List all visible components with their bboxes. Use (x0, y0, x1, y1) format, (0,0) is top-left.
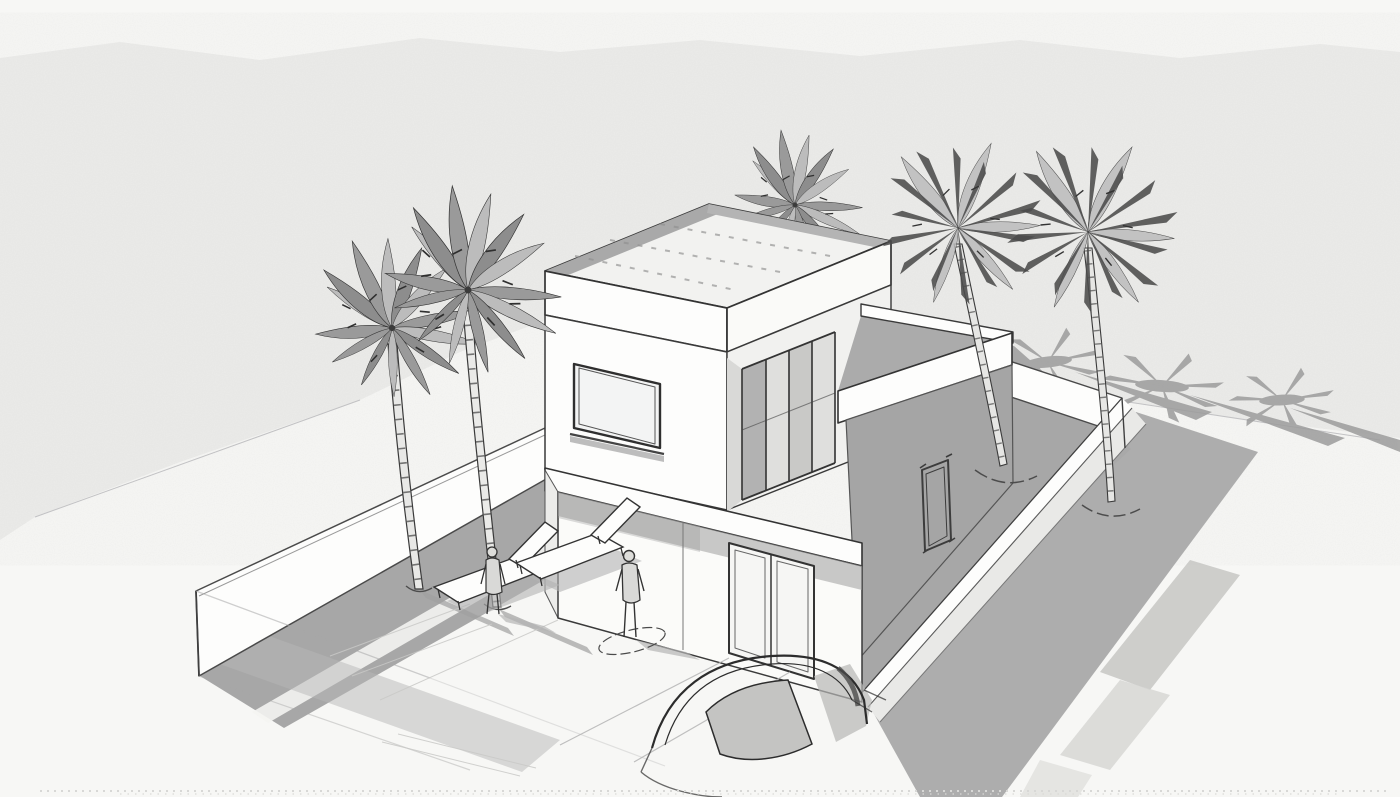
ground-floor-left-return (545, 470, 558, 618)
sketch-canvas (0, 0, 1400, 797)
architectural-sketch (0, 0, 1400, 797)
